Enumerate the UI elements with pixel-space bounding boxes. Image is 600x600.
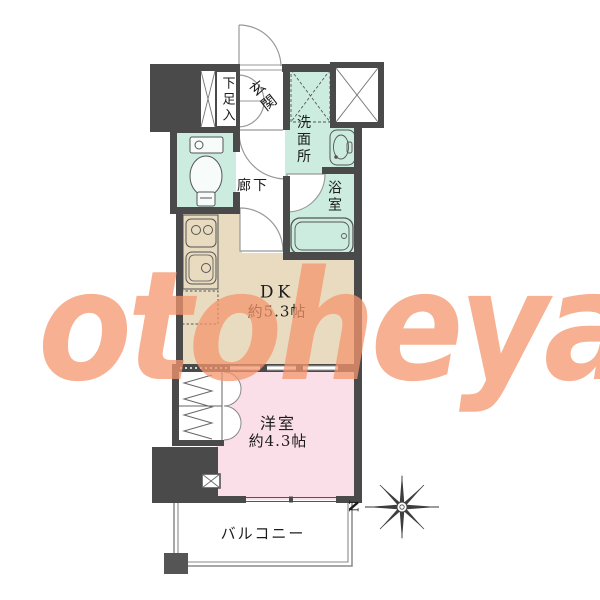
vent-box-icon	[202, 474, 220, 488]
western-room-size: 約4.3帖	[249, 434, 308, 451]
room-label-hallway: 廊下	[237, 178, 269, 194]
shaft-box-icon	[330, 62, 384, 128]
compass-icon	[365, 474, 439, 540]
dk-size: 約5.3帖	[248, 303, 307, 320]
room-label-shoe-storage: 下足入	[219, 76, 234, 124]
entrance-door-arc	[239, 25, 281, 66]
balcony-pillar	[164, 553, 188, 574]
compass-north-label: N	[349, 500, 364, 512]
sliding-partition	[230, 366, 338, 371]
dk-door-arc	[240, 208, 283, 251]
washroom-door-arc	[239, 132, 286, 179]
floorplan-image: 下足入 玄関 洗面所 浴室 廊下 DK 約5.3帖 洋室 約4.3帖 バルコニー…	[0, 0, 600, 600]
room-label-western-room: 洋室 約4.3帖	[249, 415, 308, 451]
pipe-space-icon	[200, 70, 216, 128]
dk-name: DK	[248, 284, 307, 304]
room-label-bathroom: 浴室	[326, 180, 342, 214]
room-label-dk: DK 約5.3帖	[248, 284, 307, 321]
room-label-washroom: 洗面所	[295, 115, 311, 166]
pillar-top-left	[150, 64, 200, 132]
western-room-name: 洋室	[249, 415, 308, 433]
room-label-balcony: バルコニー	[221, 525, 306, 542]
